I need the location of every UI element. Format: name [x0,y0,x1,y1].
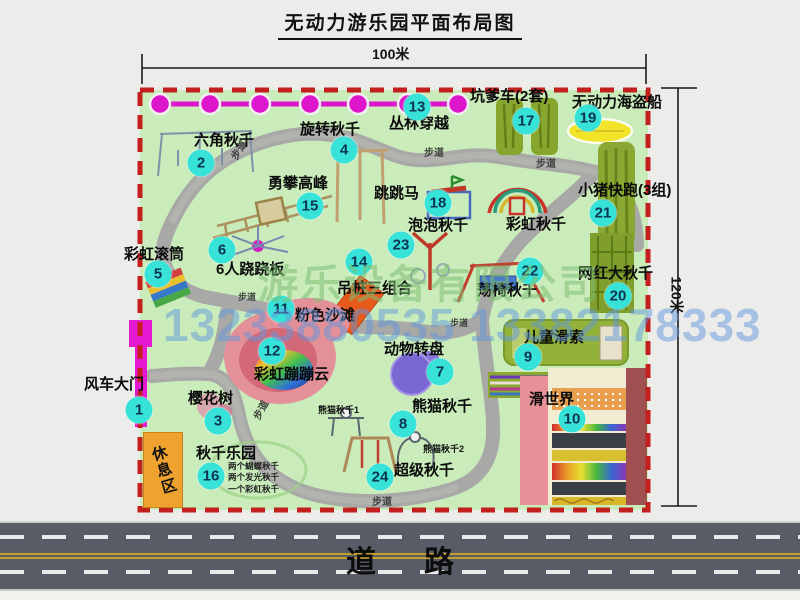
label-cherry-tree: 樱花树 [188,391,233,407]
label-super-swing: 超级秋千 [394,463,454,479]
badge-pirate-ship: 19 [575,105,602,132]
badge-hexagon-swing: 2 [188,150,215,177]
badge-gate: 1 [126,397,153,424]
label-swing-park: 秋千乐园 [196,446,256,462]
rest-area-label: 休息区 [146,443,180,498]
label-pit-car: 坑爹车(2套) [470,89,548,105]
bottom-margin [0,591,800,600]
swing-park-item-1: 两个蝴蝶秋千 [228,461,279,472]
badge-jumping-horse: 18 [425,190,452,217]
label-panda-swing: 熊猫秋千 [412,399,472,415]
badge-rainbow-roller: 5 [145,261,172,288]
label-bubble-swing: 泡泡秋千 [408,218,468,234]
badge-jungle-crossing: 13 [404,94,431,121]
label-piggy-run: 小猪快跑(3组) [578,183,671,199]
label-gate: 风车大门 [84,377,144,393]
walkway-label: 步道 [536,155,556,170]
swing-park-item-2: 两个发光秋千 [228,472,279,483]
badge-panda-swing: 8 [390,411,417,438]
badge-animal-carousel: 7 [427,359,454,386]
badge-slide-world: 10 [559,406,586,433]
road-label: 道路 [0,537,800,581]
road: 道路 [0,521,800,593]
badge-piggy-run: 21 [590,200,617,227]
label-climbing-peak: 勇攀高峰 [268,176,328,192]
page-title: 无动力游乐园平面布局图 [0,8,800,40]
swing-park-item-3: 一个彩虹秋千 [228,484,279,495]
badge-pit-car: 17 [513,108,540,135]
label-hexagon-swing: 六角秋千 [194,133,254,149]
layout-canvas: 无动力游乐园平面布局图 100米 120米 步道 步道 步道 步道 步道 步道 … [0,0,800,600]
label-jumping-horse: 跳跳马 [374,186,419,202]
walkway-label: 步道 [372,493,392,508]
badge-super-swing: 24 [367,464,394,491]
walkway-label: 步道 [424,144,444,159]
badge-cherry-tree: 3 [205,408,232,435]
swing-park-items: 两个蝴蝶秋千 两个发光秋千 一个彩虹秋千 [228,461,279,495]
dimension-top-label: 100米 [372,44,409,64]
label-rainbow-swing: 彩虹秋千 [506,217,566,233]
rest-area: 休息区 [143,432,183,508]
slide-world-doodle [520,368,647,505]
page-title-text: 无动力游乐园平面布局图 [278,8,521,40]
watermark-phone: 13233880535 13382178333 [163,298,762,352]
badge-swing-park: 16 [198,463,225,490]
label-panda-swing-2: 熊猫秋千2 [423,442,464,455]
badge-climbing-peak: 15 [297,193,324,220]
label-rainbow-cloud: 彩虹蹦蹦云 [254,367,329,383]
label-panda-swing-1: 熊猫秋千1 [318,403,359,416]
label-rotating-swing: 旋转秋千 [300,122,360,138]
badge-seesaw: 6 [209,237,236,264]
badge-rotating-swing: 4 [331,137,358,164]
